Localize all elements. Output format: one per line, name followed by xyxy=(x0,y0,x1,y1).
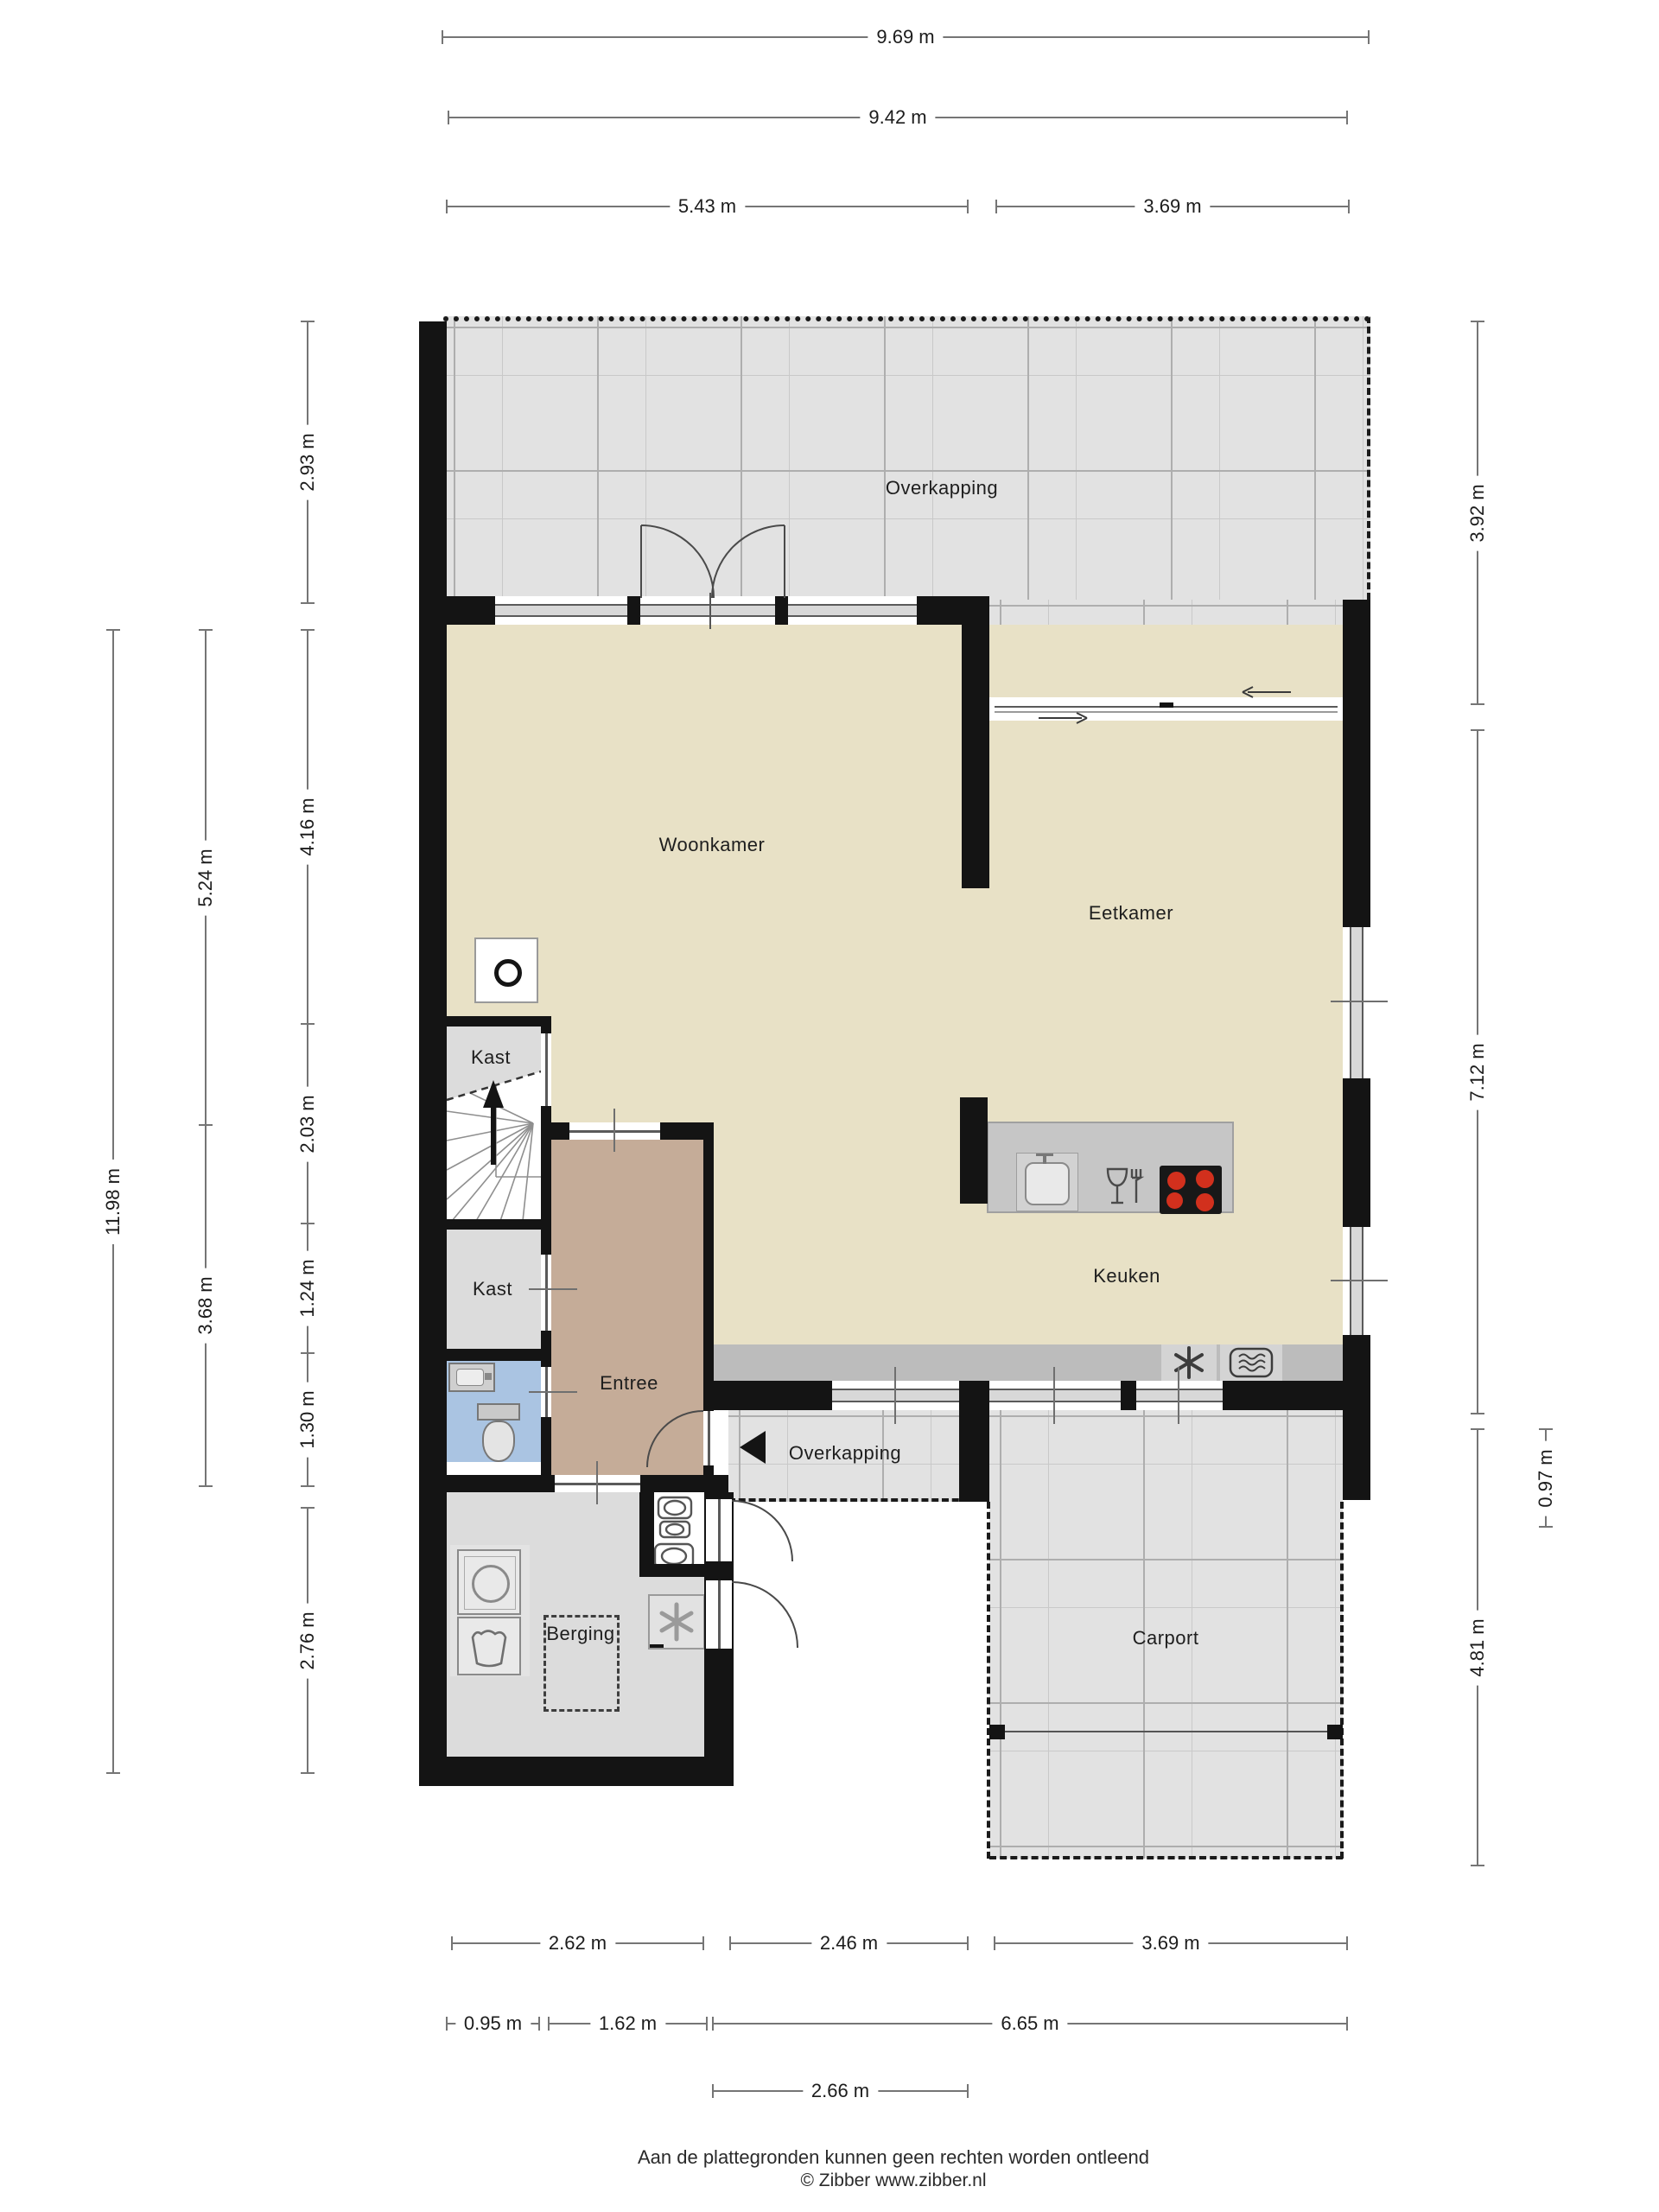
dim-label: 3.92 m xyxy=(1466,475,1489,550)
front-door-arc xyxy=(643,1408,709,1471)
wall-woonkamer-top-right xyxy=(917,596,989,625)
sliding-door-arrow-right-icon xyxy=(1037,710,1089,726)
carport-border-bottom xyxy=(989,1856,1343,1859)
window-right-eetkamer xyxy=(1343,927,1370,1078)
dim-label: 1.30 m xyxy=(296,1382,319,1457)
dim-label: 3.69 m xyxy=(1135,195,1210,218)
wall-keuken-bottom-2 xyxy=(1121,1381,1136,1410)
label-keuken: Keuken xyxy=(1093,1265,1160,1287)
wall-island-stub xyxy=(960,1097,988,1204)
tick-right-window-1 xyxy=(1331,1001,1388,1002)
dim-top-left-part: 5.43 m xyxy=(447,206,968,207)
dim-label: 7.12 m xyxy=(1466,1034,1489,1109)
label-kast-onder: Kast xyxy=(473,1278,512,1300)
dim-right-712: 7.12 m xyxy=(1477,730,1478,1414)
dim-label: 11.98 m xyxy=(102,1160,124,1244)
toilet-icon xyxy=(477,1403,522,1465)
dim-right-481: 4.81 m xyxy=(1477,1429,1478,1866)
label-entree: Entree xyxy=(600,1372,658,1395)
window-mullion-2 xyxy=(775,596,788,625)
dim-bottom-162: 1.62 m xyxy=(549,2023,707,2024)
laundry-basket-glyph xyxy=(466,1624,512,1669)
wall-berging-bottom xyxy=(419,1757,734,1786)
cooktop-icon xyxy=(1160,1166,1222,1214)
window-mullion-1 xyxy=(627,596,640,625)
carport-border-right xyxy=(1340,1502,1344,1859)
label-overkapping-entree: Overkapping xyxy=(789,1442,901,1465)
hand-basin-icon xyxy=(448,1363,495,1392)
tick-entree-top-window xyxy=(613,1109,615,1152)
wall-kast-toilet-divider xyxy=(447,1349,551,1361)
label-eetkamer: Eetkamer xyxy=(1089,902,1173,925)
window-keuken-bottom-2 xyxy=(989,1381,1121,1410)
dim-label: 2.66 m xyxy=(803,2080,878,2102)
tick-toilet-panel xyxy=(529,1391,577,1393)
stove-icon xyxy=(474,938,538,1003)
wall-kast-top xyxy=(447,1016,551,1027)
wall-right-lower xyxy=(1343,1335,1370,1500)
dim-label: 2.03 m xyxy=(296,1086,319,1161)
dim-label: 2.62 m xyxy=(540,1932,615,1955)
meter-cabinet-icon xyxy=(650,1496,705,1573)
footer-copyright: © Zibber www.zibber.nl xyxy=(800,2171,986,2191)
glass-panel-stairs xyxy=(541,1033,551,1106)
floorplan-page: Overkapping Woonkamer Eetkamer Keuken Ka… xyxy=(0,0,1659,2212)
berging-door-lower xyxy=(706,1580,732,1649)
wall-left-outer xyxy=(419,321,447,1786)
stairs-up-arrow-icon xyxy=(481,1080,505,1166)
wall-woonkamer-top-left xyxy=(447,596,497,625)
dim-top-inner: 9.42 m xyxy=(448,117,1347,118)
dim-label: 1.62 m xyxy=(590,2012,665,2035)
dishwasher-icon xyxy=(1104,1166,1142,1210)
dim-left-524: 5.24 m xyxy=(205,630,207,1125)
dim-label: 2.93 m xyxy=(296,424,319,499)
dim-left-276: 2.76 m xyxy=(307,1508,308,1773)
extractor-fan-icon xyxy=(1170,1344,1208,1381)
dim-bottom-369: 3.69 m xyxy=(995,1942,1347,1944)
dim-left-130: 1.30 m xyxy=(307,1353,308,1486)
glass-panel-kast xyxy=(541,1255,551,1331)
wall-keuken-bottom-stub xyxy=(959,1381,989,1502)
dim-left-124: 1.24 m xyxy=(307,1224,308,1353)
dim-left-total: 11.98 m xyxy=(112,630,114,1773)
carport-beam xyxy=(994,1731,1339,1732)
french-doors-arcs xyxy=(639,522,787,600)
tick-right-window-2 xyxy=(1331,1280,1388,1281)
sliding-door-arrow-left-icon xyxy=(1241,684,1293,700)
dim-label: 9.42 m xyxy=(860,106,935,129)
entrance-arrow-icon xyxy=(740,1431,766,1464)
dim-label: 2.76 m xyxy=(296,1603,319,1678)
wall-entree-right xyxy=(703,1122,714,1411)
tick-entree-bottom-window xyxy=(596,1461,598,1504)
footer-disclaimer: Aan de plattegronden kunnen geen rechten… xyxy=(638,2146,1149,2169)
berging-door-upper xyxy=(706,1499,732,1561)
dim-bottom-262: 2.62 m xyxy=(452,1942,703,1944)
dim-top-right-part: 3.69 m xyxy=(996,206,1349,207)
area-overkapping-top xyxy=(443,316,1370,600)
tick-kast-panel xyxy=(529,1288,577,1290)
carport-border-left xyxy=(987,1502,990,1859)
dim-left-416: 4.16 m xyxy=(307,630,308,1024)
tick-keuken-window-2 xyxy=(1053,1367,1055,1424)
berging-door-upper-arc xyxy=(730,1499,796,1565)
dim-top-total: 9.69 m xyxy=(442,36,1369,38)
dim-label: 3.69 m xyxy=(1133,1932,1208,1955)
dim-label: 5.43 m xyxy=(670,195,745,218)
wall-woonkamer-eetkamer-divider xyxy=(962,625,989,888)
dim-label: 4.81 m xyxy=(1466,1610,1489,1685)
freezer-fan-icon xyxy=(657,1601,696,1643)
dim-label: 2.46 m xyxy=(811,1932,887,1955)
dim-left-368: 3.68 m xyxy=(205,1125,207,1486)
dim-label: 0.95 m xyxy=(455,2012,531,2035)
dim-label: 9.69 m xyxy=(868,26,943,48)
tick-keuken-window-1 xyxy=(894,1367,896,1424)
dim-bottom-095: 0.95 m xyxy=(447,2023,539,2024)
berging-door-lower-arc xyxy=(730,1580,801,1651)
window-woonkamer-top xyxy=(495,596,917,625)
label-woonkamer: Woonkamer xyxy=(659,834,766,856)
washing-machine-icon xyxy=(457,1549,521,1615)
sink-icon xyxy=(1025,1162,1070,1205)
dim-bottom-665: 6.65 m xyxy=(713,2023,1347,2024)
dim-label: 3.68 m xyxy=(194,1268,217,1343)
dim-label: 5.24 m xyxy=(194,840,217,915)
wall-stairs-kast-divider xyxy=(447,1219,551,1230)
window-keuken-bottom-3 xyxy=(1136,1381,1223,1410)
dim-label: 6.65 m xyxy=(992,2012,1067,2035)
wall-keuken-bottom-3 xyxy=(1223,1381,1343,1410)
oven-icon xyxy=(1225,1346,1277,1379)
tick-keuken-window-3 xyxy=(1178,1367,1179,1424)
label-carport: Carport xyxy=(1133,1627,1199,1649)
sliding-door-handle-icon xyxy=(1160,702,1173,708)
label-berging: Berging xyxy=(546,1623,614,1645)
carport-post-left xyxy=(989,1725,1005,1739)
dim-bottom-266: 2.66 m xyxy=(713,2090,968,2092)
dim-left-203: 2.03 m xyxy=(307,1024,308,1224)
dim-left-293: 2.93 m xyxy=(307,321,308,603)
wall-right-middle xyxy=(1343,1078,1370,1227)
dim-right-097: 0.97 m xyxy=(1545,1429,1547,1527)
wall-keuken-bottom-1 xyxy=(714,1381,832,1410)
dim-label: 1.24 m xyxy=(296,1250,319,1325)
dim-right-392: 3.92 m xyxy=(1477,321,1478,704)
freezer-door-tick xyxy=(650,1644,664,1648)
label-kast-boven: Kast xyxy=(471,1046,511,1069)
carport-post-right xyxy=(1327,1725,1343,1739)
dim-bottom-246: 2.46 m xyxy=(730,1942,968,1944)
dim-label: 4.16 m xyxy=(296,789,319,864)
wall-right-upper xyxy=(1343,600,1370,927)
dim-label: 0.97 m xyxy=(1535,1440,1557,1516)
label-overkapping-top: Overkapping xyxy=(886,477,998,499)
island-sink-unit xyxy=(1016,1153,1078,1211)
